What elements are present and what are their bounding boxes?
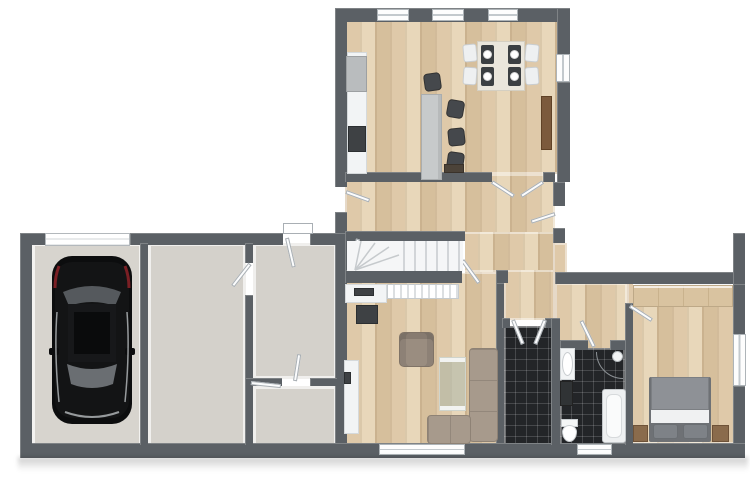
hallway-floor [345,174,555,234]
fridge [346,56,367,92]
wall-garage-divider [140,243,148,445]
wall-east-b [733,386,745,445]
wall-bedroom-west [625,303,633,445]
wall-west-upper [335,8,347,187]
wall-living-top-a [345,270,462,283]
kitchen-window-3 [488,9,518,21]
wall-mid-east-a [553,182,565,206]
wall-ne-stub [733,233,745,284]
wardrobe-row [633,285,733,307]
kitchen-side-window [556,54,570,82]
bed-sheet [651,410,709,423]
wall-storage-horiz-b [310,378,337,386]
plate-2 [483,72,492,81]
wall-storage-divider-a [245,243,253,263]
wall-entryhall-stub-l [502,318,510,328]
dining-chair-3 [524,43,540,62]
media-box [356,305,378,324]
plate-1 [483,50,492,59]
garage-door [45,233,130,246]
floor-plan [0,0,750,479]
entry-hall-floor [504,326,553,445]
dining-chair-4 [524,67,539,86]
storage-lower-floor [253,386,337,446]
wall-leftwing-top-c [310,233,345,245]
living-sideboard-item [344,372,351,384]
wall-living-top-b [496,270,508,283]
wall-kitchen-bottom-a [345,172,492,182]
plate-3 [510,50,519,59]
dining-chair-1 [462,43,478,62]
wall-kitchen-east-a [557,8,570,55]
wall-leftwing-top-b [130,233,283,245]
armchair [399,332,434,367]
bed-pillow-left [653,424,678,439]
bathtub-inner [606,394,622,438]
wall-east-a [733,284,745,334]
living-room-window [379,444,465,455]
staircase [347,241,463,271]
radiator [387,284,459,299]
storage-large-floor [148,243,246,446]
dining-chair-2 [462,67,477,86]
kitchen-island [421,94,442,180]
bar-stool-1 [423,72,442,92]
kitchen-window-1 [377,9,409,21]
sofa-seat [427,415,471,444]
wall-leftwing-west [20,233,32,445]
nightstand-left [633,425,648,442]
wall-kitchen-bottom-b [543,172,555,182]
cooktop [348,126,366,152]
car [49,252,135,428]
nightstand-right [712,425,729,442]
bathroom-window [577,444,612,455]
bathroom-sink-basin [562,352,573,376]
tv [354,288,374,296]
wall-mid-east-b [553,228,565,243]
wall-hall-bath-divider [551,318,560,445]
bed-duvet [651,377,709,410]
bar-stool-3 [447,127,466,147]
wall-kitchen-east-b [557,82,570,182]
wall-stair-top [353,231,465,241]
bed-pillow-right [683,424,708,439]
shower-head [612,351,623,362]
bedroom-window [733,334,746,386]
wall-storage-divider-b [245,295,253,445]
bathroom-vanity [560,381,573,406]
hallway-floor-east [463,232,565,272]
sofa-chaise [469,348,498,442]
building-shadow [18,457,748,471]
sideboard-brown [541,96,552,150]
kitchen-low-cabinet [444,164,464,173]
wall-rightwing-top [555,272,745,284]
porch-step [283,223,313,234]
coffee-table [439,357,466,411]
bar-stool-2 [446,99,466,120]
kitchen-window-2 [432,9,464,21]
plate-4 [510,72,519,81]
